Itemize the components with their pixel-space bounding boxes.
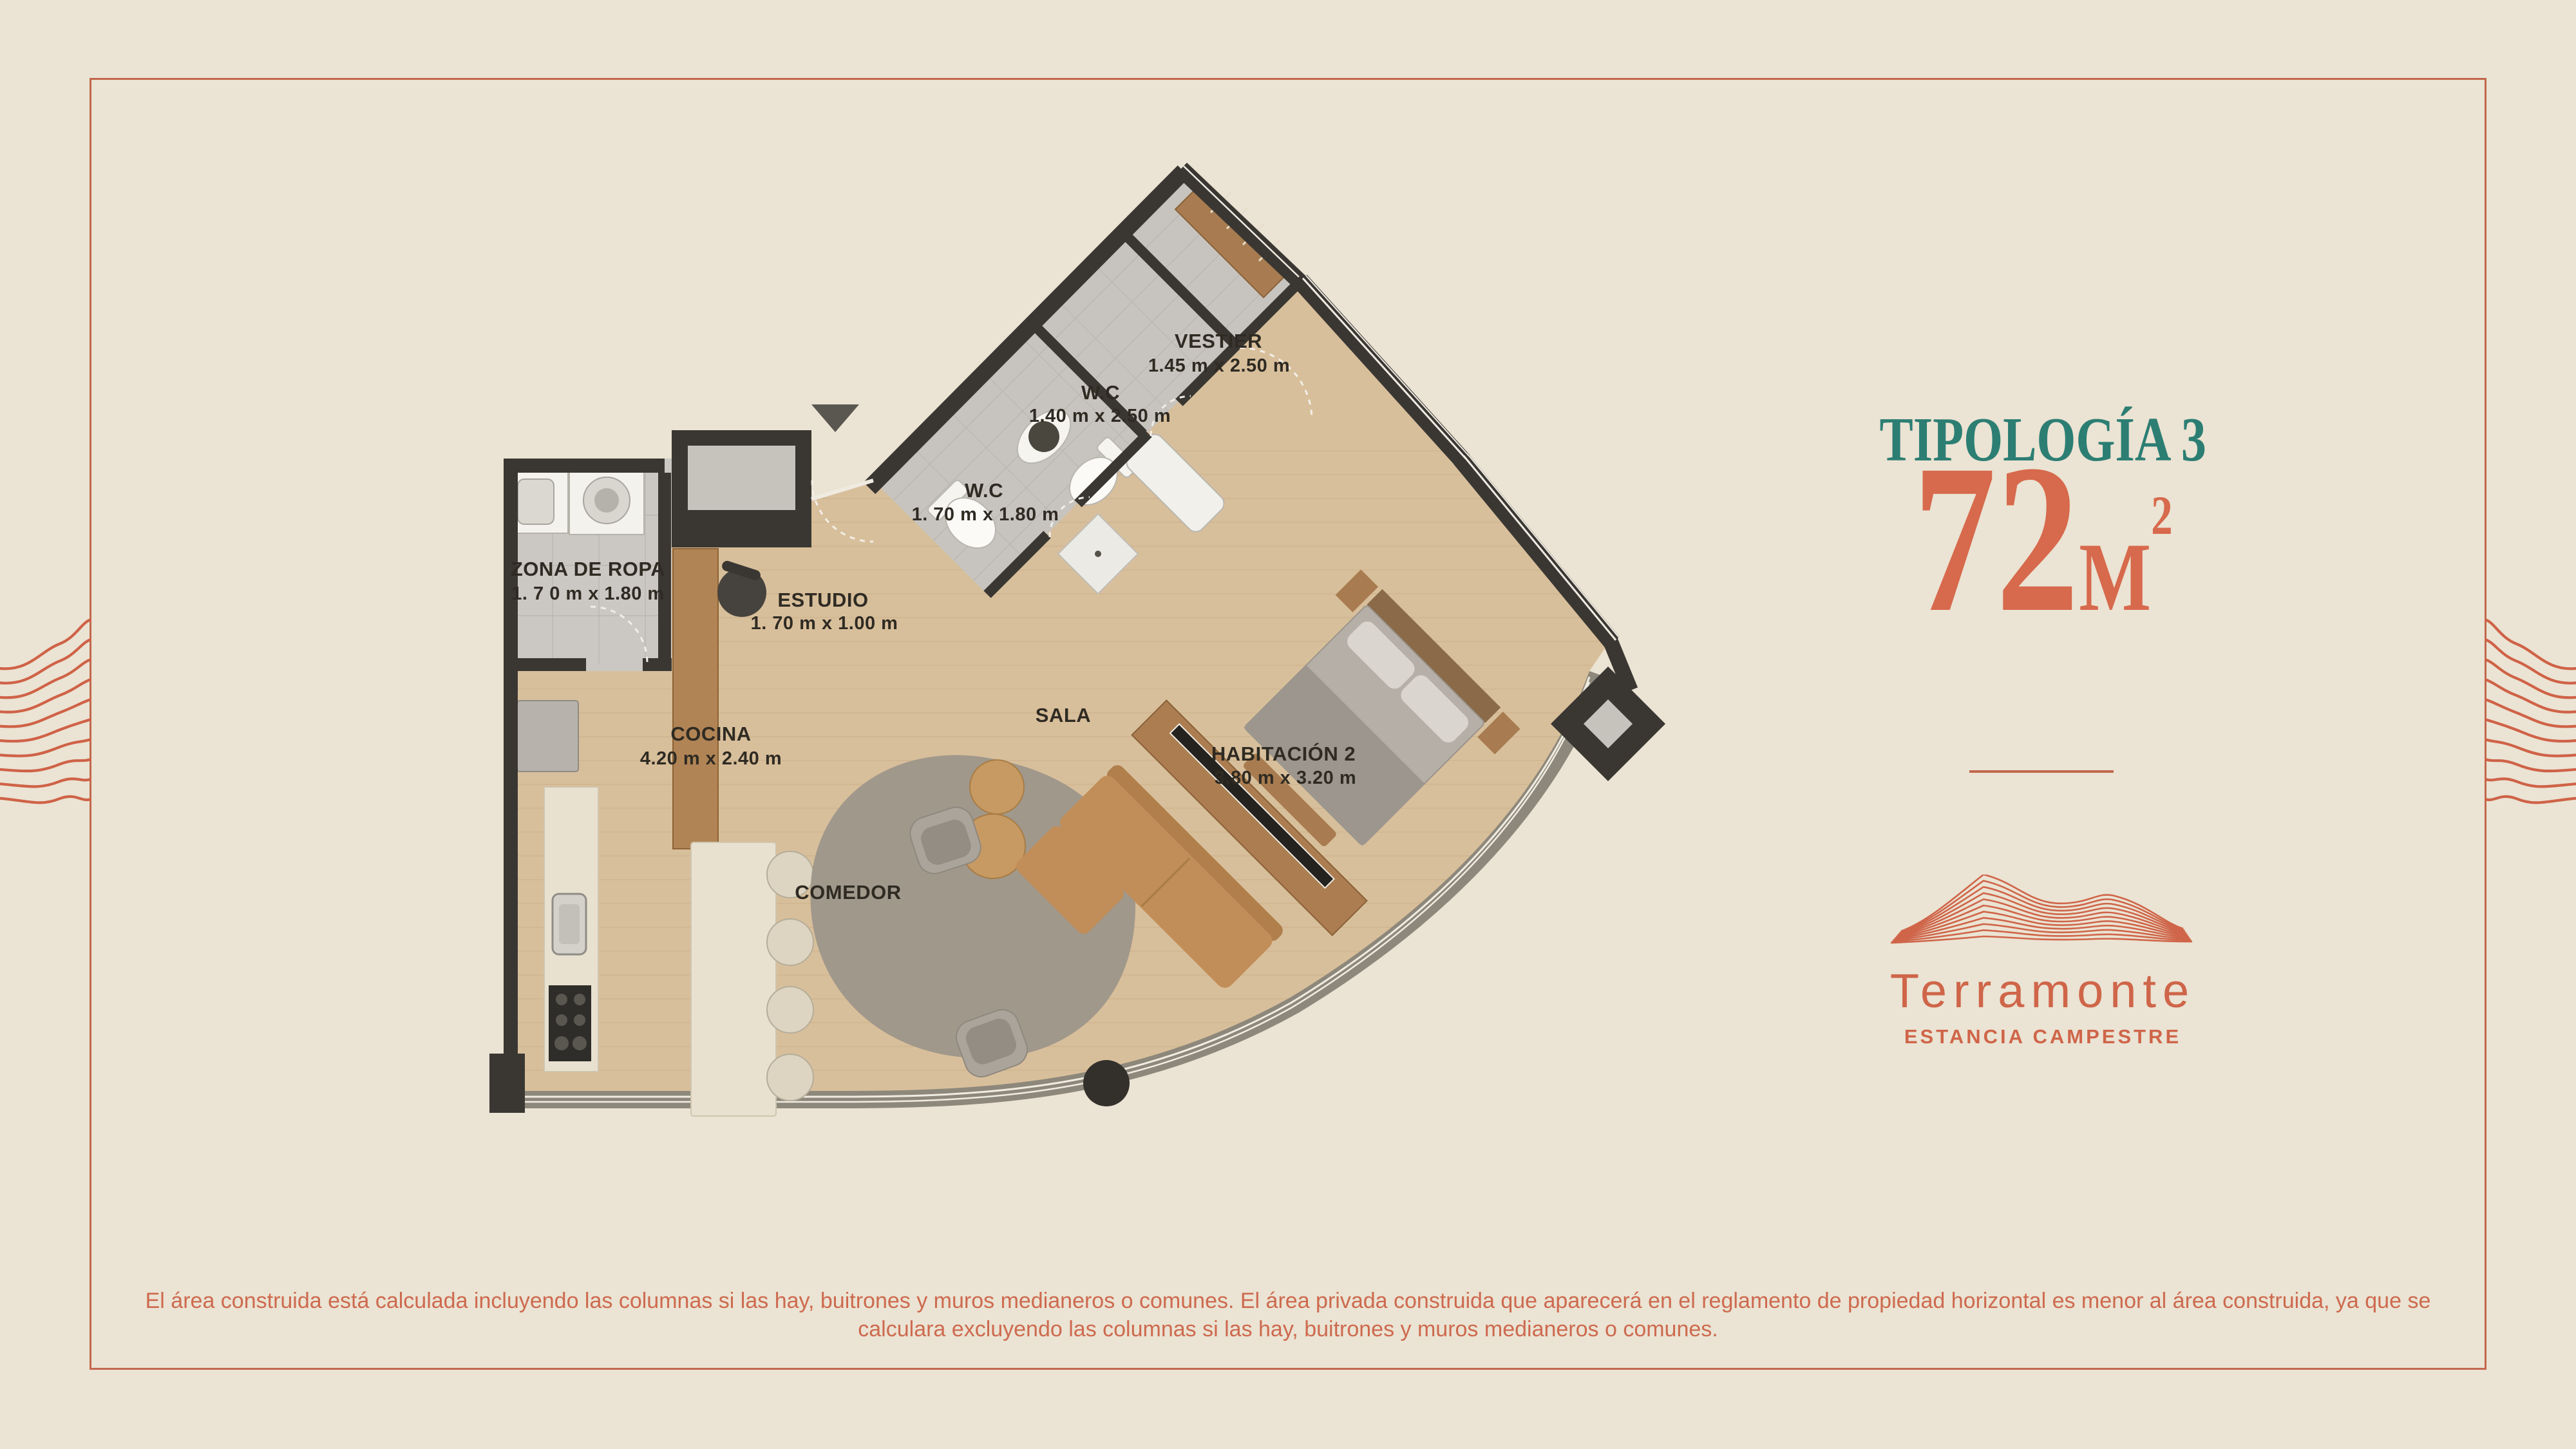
logo-wordmark: Terramonte [1817,963,2268,1018]
room-label-cocina: COCINA [670,723,751,745]
room-label-zona: ZONA DE ROPA [511,558,665,580]
room-label-sala: SALA [1036,704,1091,726]
washing-machine [569,466,644,535]
logo-tagline: ESTANCIA CAMPESTRE [1817,1025,2268,1048]
room-label-wc2: W.C [1081,381,1120,404]
stove [549,985,591,1061]
room-dims-wc1: 1. 70 m x 1.80 m [912,504,1059,525]
dining-table [691,842,776,1116]
area-number: 72 [1913,433,2079,645]
room-dims-wc2: 1.40 m x 2.50 m [1029,406,1171,426]
floor-plan: ZONA DE ROPA 1. 7 0 m x 1.80 m ESTUDIO 1… [451,148,1687,1159]
area-value: 72 M 2 [1817,433,2268,658]
room-label-wc1: W.C [965,479,1003,502]
floor-lamp [1083,1060,1130,1106]
desk [673,549,718,849]
area-superscript: 2 [2151,488,2173,543]
disclaimer-line1: El área construida está calculada incluy… [146,1289,2431,1313]
kitchen-sink [553,894,586,954]
divider-line [1969,770,2114,773]
fridge [517,701,578,772]
left-wave-ornament [0,611,91,913]
room-dims-habitacion2: 3.80 m x 3.20 m [1215,768,1356,788]
entry-arrow-icon [811,404,859,432]
room-dims-vestier: 1.45 m x 2.50 m [1148,355,1290,376]
room-label-estudio: ESTUDIO [777,589,868,611]
right-wave-ornament [2485,611,2576,913]
disclaimer-line2: calculara excluyendo las columnas si las… [858,1317,1718,1341]
room-dims-zona: 1. 7 0 m x 1.80 m [511,583,664,604]
area-unit: M [2079,528,2151,626]
room-dims-estudio: 1. 70 m x 1.00 m [751,613,898,634]
mountain-logo-icon [1887,875,2196,949]
disclaimer-text: El área construida está calculada incluy… [129,1287,2447,1343]
room-label-vestier: VESTIER [1175,330,1262,352]
room-label-comedor: COMEDOR [795,881,901,904]
room-dims-cocina: 4.20 m x 2.40 m [640,748,782,769]
room-label-habitacion2: HABITACIÓN 2 [1211,742,1356,765]
